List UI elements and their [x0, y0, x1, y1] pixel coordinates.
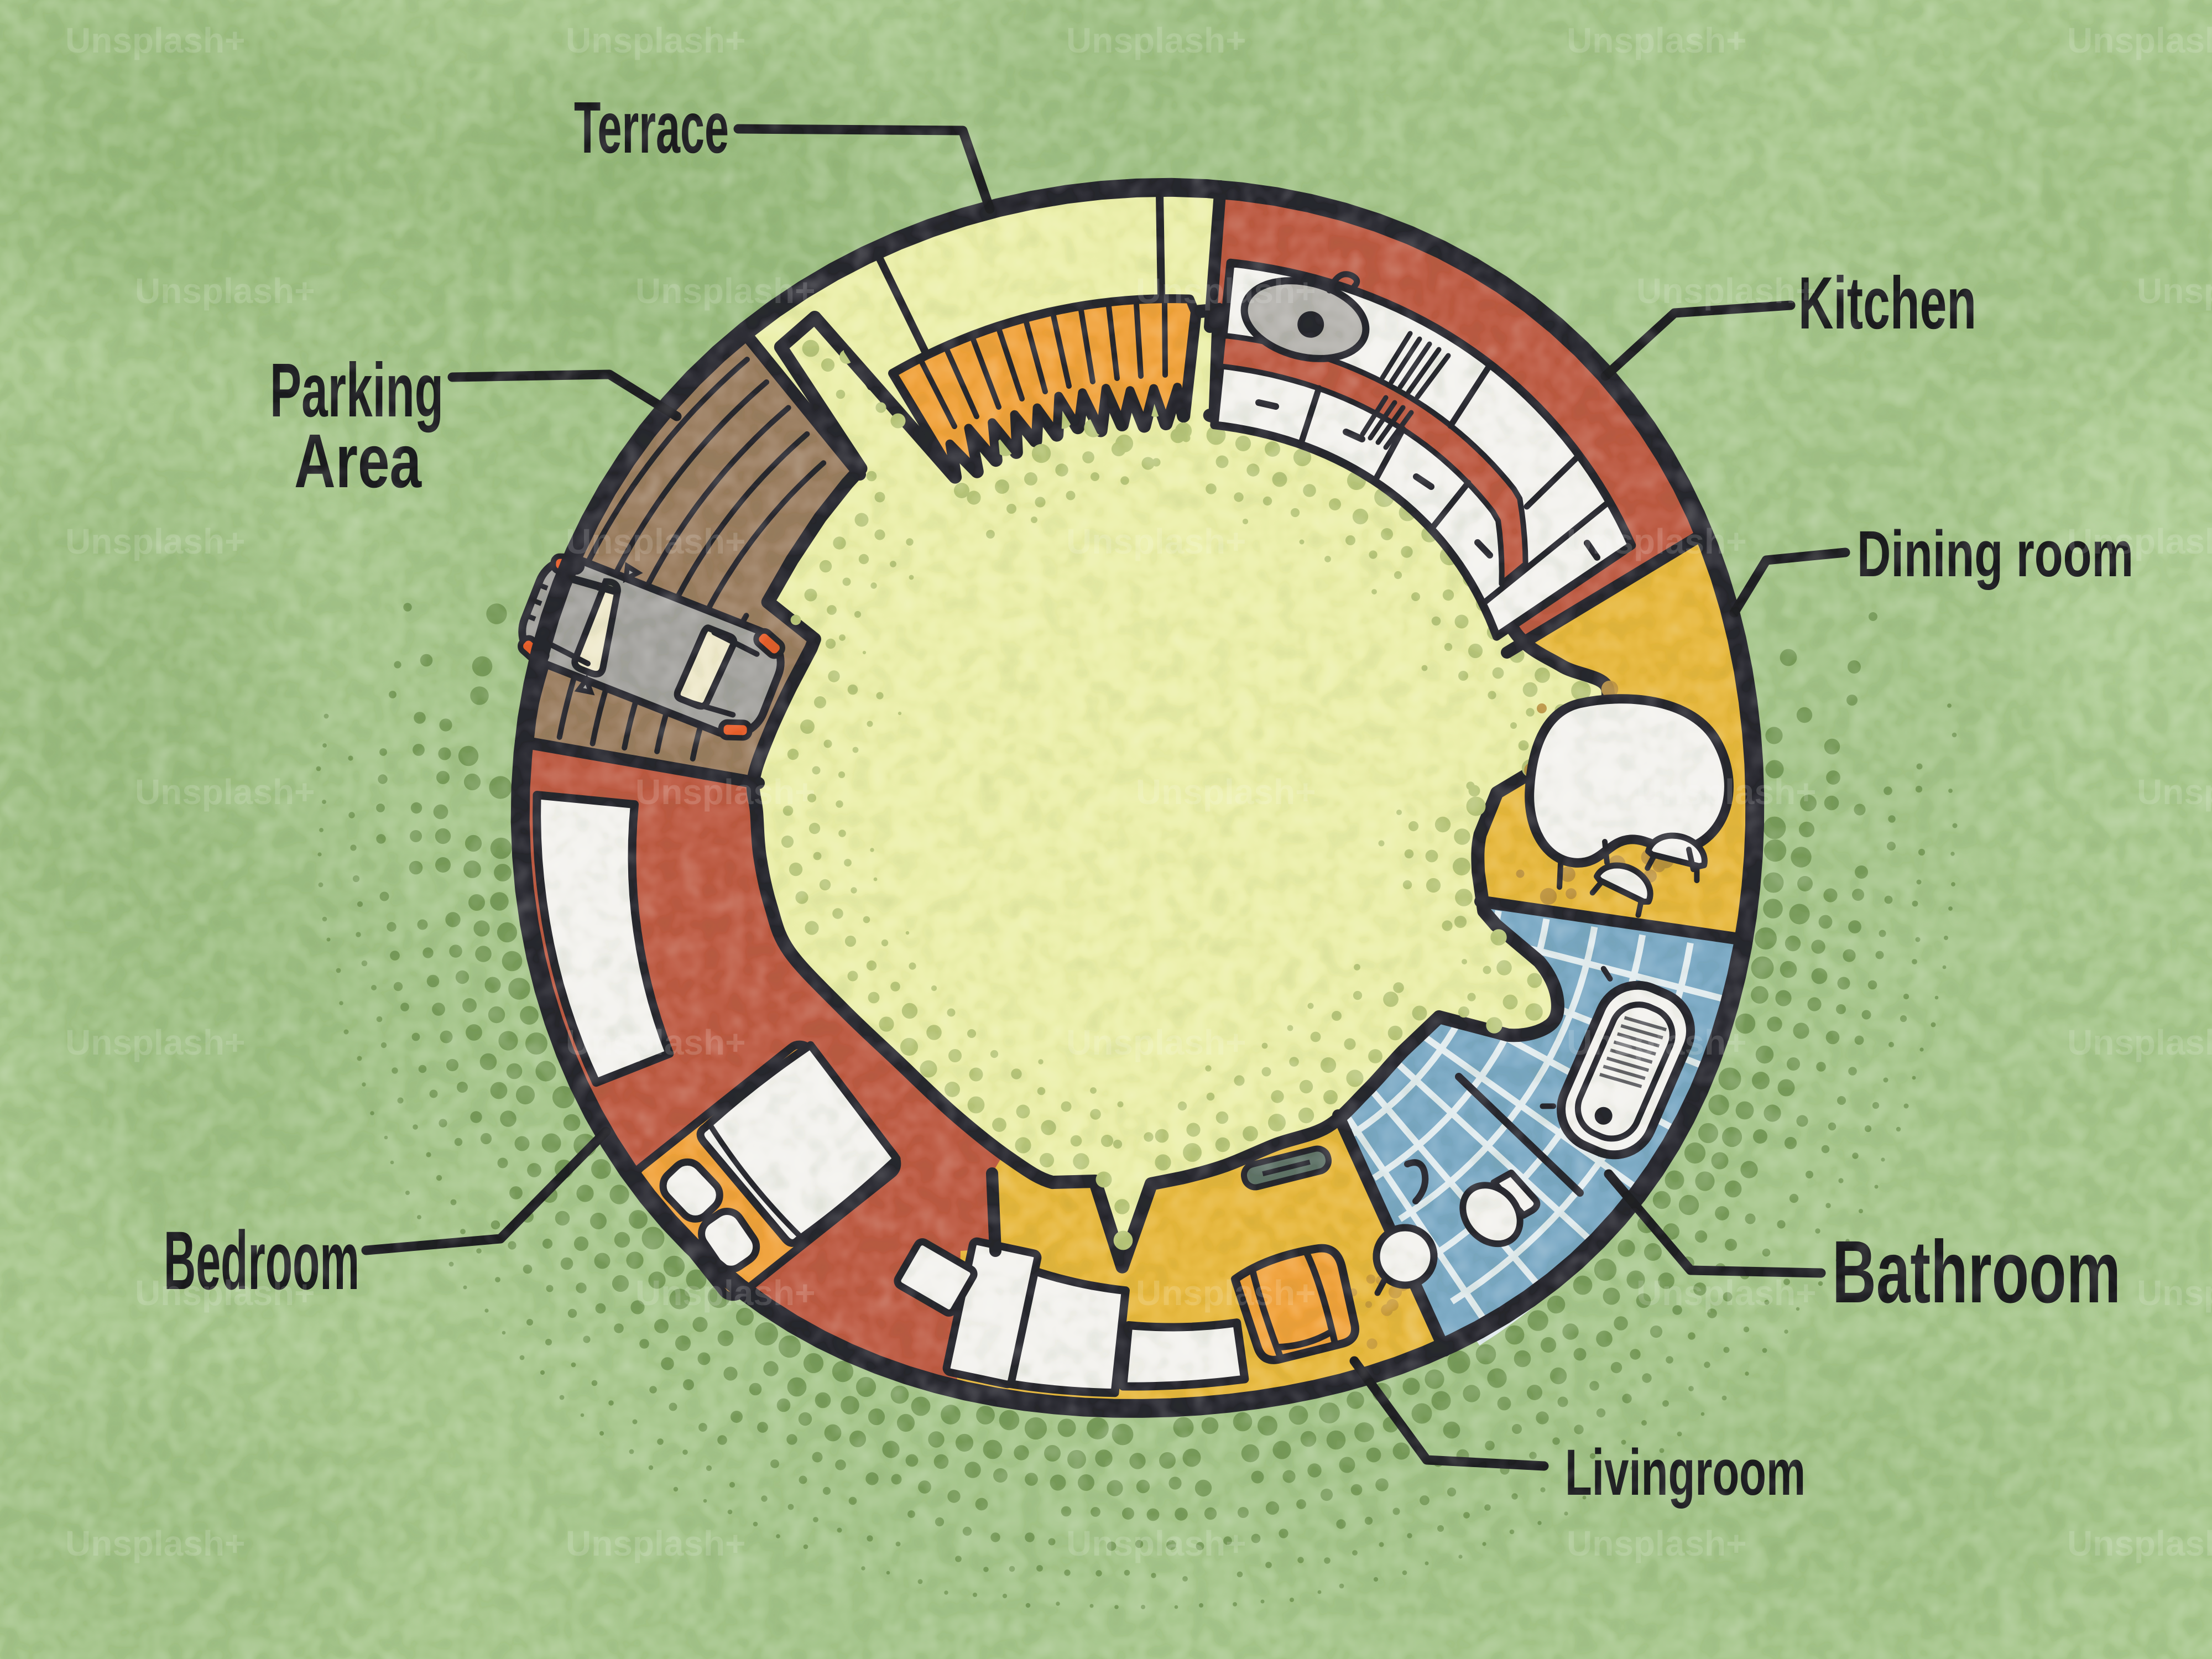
svg-text:Unsplash+: Unsplash+ [1636, 1273, 1816, 1313]
svg-text:Unsplash+: Unsplash+ [566, 1022, 745, 1062]
svg-text:Unsplash+: Unsplash+ [2137, 271, 2212, 311]
svg-text:Unsplash+: Unsplash+ [1066, 1524, 1246, 1563]
svg-text:Unsplash+: Unsplash+ [1136, 772, 1316, 812]
svg-text:Unsplash+: Unsplash+ [1066, 20, 1246, 60]
svg-text:Unsplash+: Unsplash+ [2137, 772, 2212, 812]
svg-text:Unsplash+: Unsplash+ [566, 20, 745, 60]
svg-text:Unsplash+: Unsplash+ [1567, 1524, 1746, 1563]
svg-text:Unsplash+: Unsplash+ [135, 271, 315, 311]
svg-text:Unsplash+: Unsplash+ [1567, 1022, 1746, 1062]
svg-text:Unsplash+: Unsplash+ [2067, 1022, 2212, 1062]
svg-text:Unsplash+: Unsplash+ [635, 1273, 815, 1313]
svg-text:Unsplash+: Unsplash+ [1567, 20, 1746, 60]
svg-text:Unsplash+: Unsplash+ [1136, 1273, 1316, 1313]
svg-text:Unsplash+: Unsplash+ [635, 772, 815, 812]
svg-text:Unsplash+: Unsplash+ [135, 772, 315, 812]
svg-text:Unsplash+: Unsplash+ [2067, 1524, 2212, 1563]
svg-text:Unsplash+: Unsplash+ [635, 271, 815, 311]
svg-text:Unsplash+: Unsplash+ [1066, 521, 1246, 561]
svg-text:Unsplash+: Unsplash+ [1066, 1022, 1246, 1062]
svg-text:Unsplash+: Unsplash+ [2067, 20, 2212, 60]
svg-text:Unsplash+: Unsplash+ [2067, 521, 2212, 561]
svg-text:Unsplash+: Unsplash+ [65, 1524, 245, 1563]
svg-text:Unsplash+: Unsplash+ [65, 1022, 245, 1062]
svg-text:Unsplash+: Unsplash+ [65, 20, 245, 60]
svg-text:Unsplash+: Unsplash+ [135, 1273, 315, 1313]
svg-text:Unsplash+: Unsplash+ [566, 521, 745, 561]
svg-text:Unsplash+: Unsplash+ [1567, 521, 1746, 561]
svg-text:Unsplash+: Unsplash+ [65, 521, 245, 561]
svg-text:Unsplash+: Unsplash+ [2137, 1273, 2212, 1313]
svg-text:Unsplash+: Unsplash+ [1636, 772, 1816, 812]
svg-text:Unsplash+: Unsplash+ [1636, 271, 1816, 311]
svg-text:Unsplash+: Unsplash+ [566, 1524, 745, 1563]
svg-text:Unsplash+: Unsplash+ [1136, 271, 1316, 311]
